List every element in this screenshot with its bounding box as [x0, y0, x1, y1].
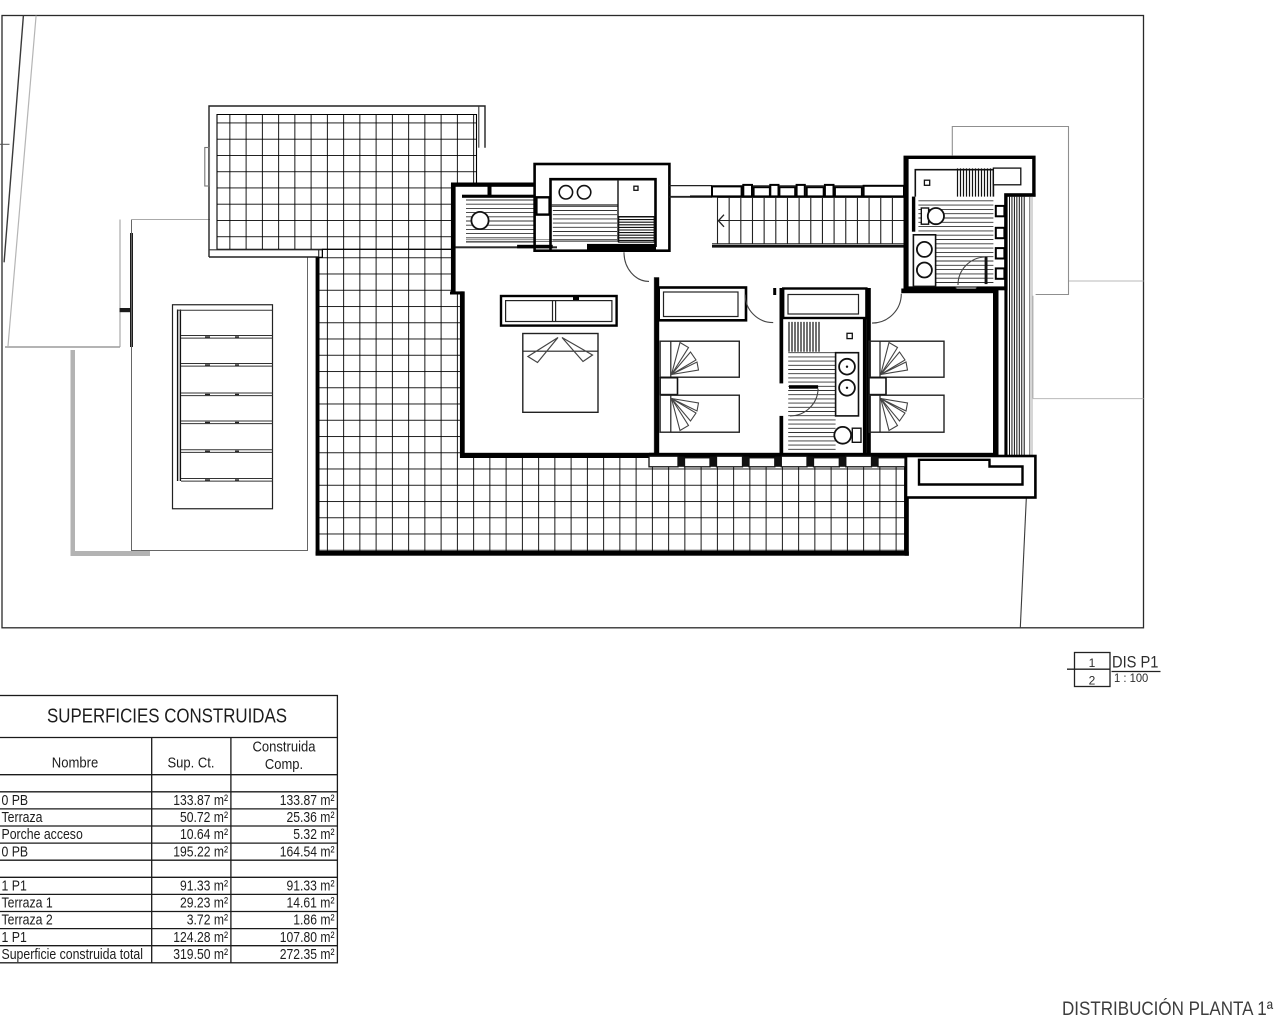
svg-text:133.87 m²: 133.87 m² — [173, 792, 228, 809]
svg-text:Terraza: Terraza — [2, 809, 44, 826]
svg-text:107.80 m²: 107.80 m² — [280, 929, 335, 946]
svg-text:Terraza 2: Terraza 2 — [2, 912, 53, 929]
svg-text:Superficie construida total: Superficie construida total — [2, 946, 144, 963]
svg-text:1 P1: 1 P1 — [2, 929, 27, 946]
svg-text:195.22 m²: 195.22 m² — [173, 843, 228, 860]
svg-text:Sup. Ct.: Sup. Ct. — [168, 755, 215, 772]
svg-text:Nombre: Nombre — [52, 755, 99, 772]
svg-text:91.33 m²: 91.33 m² — [180, 878, 228, 895]
svg-text:1.86 m²: 1.86 m² — [293, 912, 334, 929]
svg-text:319.50 m²: 319.50 m² — [173, 946, 228, 963]
svg-text:2: 2 — [1089, 674, 1096, 688]
svg-text:DIS P1: DIS P1 — [1112, 654, 1158, 672]
svg-text:164.54 m²: 164.54 m² — [280, 843, 335, 860]
svg-text:1: 1 — [1089, 656, 1096, 670]
svg-text:29.23 m²: 29.23 m² — [180, 895, 228, 912]
svg-text:0 PB: 0 PB — [2, 792, 29, 809]
svg-text:272.35 m²: 272.35 m² — [280, 946, 335, 963]
svg-text:DISTRIBUCIÓN PLANTA 1ª: DISTRIBUCIÓN PLANTA 1ª — [1062, 997, 1274, 1020]
svg-text:Terraza 1: Terraza 1 — [2, 895, 53, 912]
svg-text:25.36 m²: 25.36 m² — [287, 809, 335, 826]
svg-text:124.28 m²: 124.28 m² — [173, 929, 228, 946]
svg-text:14.61 m²: 14.61 m² — [287, 895, 335, 912]
svg-text:SUPERFICIES CONSTRUIDAS: SUPERFICIES CONSTRUIDAS — [47, 705, 287, 728]
svg-text:5.32 m²: 5.32 m² — [293, 826, 334, 843]
svg-text:3.72 m²: 3.72 m² — [187, 912, 228, 929]
svg-text:1 : 100: 1 : 100 — [1114, 671, 1149, 685]
svg-text:50.72 m²: 50.72 m² — [180, 809, 228, 826]
svg-text:1 P1: 1 P1 — [2, 878, 27, 895]
svg-text:0 PB: 0 PB — [2, 843, 29, 860]
svg-text:Construida: Construida — [253, 739, 317, 756]
svg-text:10.64 m²: 10.64 m² — [180, 826, 228, 843]
svg-text:Porche acceso: Porche acceso — [2, 826, 83, 843]
svg-text:133.87 m²: 133.87 m² — [280, 792, 335, 809]
svg-text:Comp.: Comp. — [265, 756, 303, 773]
svg-text:91.33 m²: 91.33 m² — [287, 878, 335, 895]
